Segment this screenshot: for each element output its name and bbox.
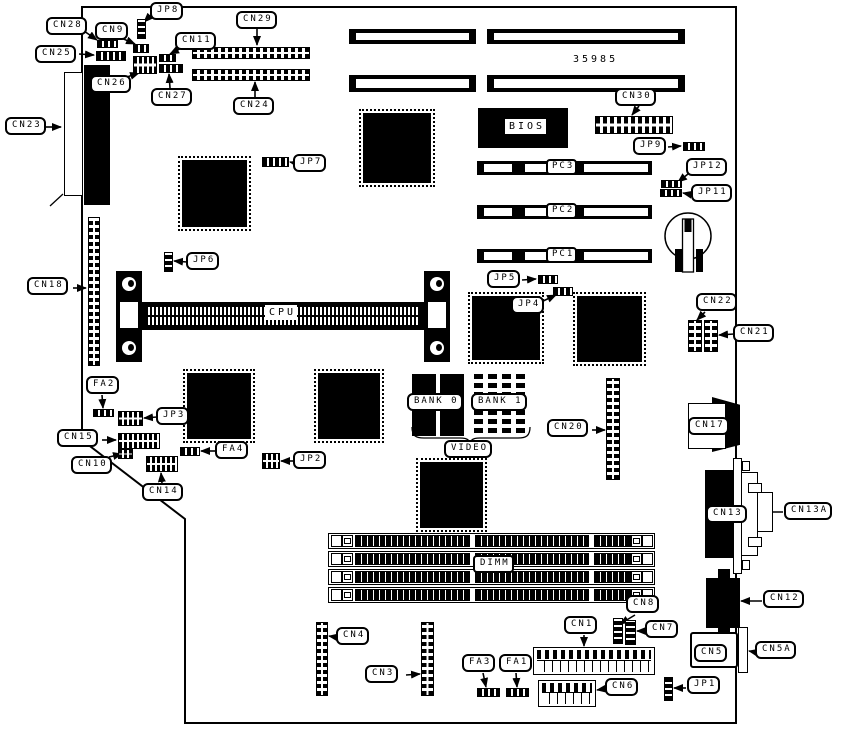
label-cn29: CN29 xyxy=(236,11,277,29)
isa-slot-4 xyxy=(487,75,685,92)
label-dimm: DIMM xyxy=(473,555,514,573)
label-cn21: CN21 xyxy=(733,324,774,342)
label-cn8: CN8 xyxy=(626,595,659,613)
connector-jp11 xyxy=(660,189,682,197)
label-fa2: FA2 xyxy=(86,376,119,394)
connector-jp7 xyxy=(262,157,289,167)
motherboard-diagram: 35985 JP8 CN28 CN9 CN29 CN25 CN11 CN26 C… xyxy=(0,0,841,729)
label-cn4: CN4 xyxy=(336,627,369,645)
connector-jp1 xyxy=(664,677,673,701)
connector-cn28 xyxy=(97,40,118,48)
label-cn18: CN18 xyxy=(27,277,68,295)
screw-hole xyxy=(430,341,444,355)
label-jp2: JP2 xyxy=(293,451,326,469)
cpu-slot-key-left xyxy=(118,300,138,330)
connector-cn3 xyxy=(421,622,434,696)
qfp-chip-7 xyxy=(420,462,483,528)
connector-fa3 xyxy=(477,688,500,697)
label-pc2: PC2 xyxy=(546,203,577,219)
label-cn5: CN5 xyxy=(694,644,727,662)
connector-cn6 xyxy=(538,680,596,707)
label-cn17: CN17 xyxy=(688,417,729,435)
connector-fa2 xyxy=(93,409,114,417)
label-bank1: BANK 1 xyxy=(471,393,527,411)
label-pc3: PC3 xyxy=(546,159,577,175)
label-cn27: CN27 xyxy=(151,88,192,106)
label-bank0: BANK 0 xyxy=(407,393,463,411)
label-jp4: JP4 xyxy=(511,296,544,314)
connector-cn7 xyxy=(625,620,636,645)
connector-cn8 xyxy=(613,618,623,644)
connector-cn13a-dsub xyxy=(757,492,773,532)
connector-jp9 xyxy=(683,142,705,151)
dimm-slot-1 xyxy=(328,533,655,549)
label-fa1: FA1 xyxy=(499,654,532,672)
label-cn15: CN15 xyxy=(57,429,98,447)
label-cn6: CN6 xyxy=(605,678,638,696)
label-bios: BIOS xyxy=(505,119,546,134)
label-fa3: FA3 xyxy=(462,654,495,672)
label-jp1: JP1 xyxy=(687,676,720,694)
label-cn13: CN13 xyxy=(706,505,747,523)
connector-cn20 xyxy=(606,378,620,480)
label-cn5a: CN5A xyxy=(755,641,796,659)
connector-cn25 xyxy=(96,51,126,61)
connector-cn27 xyxy=(159,64,183,73)
label-cn25: CN25 xyxy=(35,45,76,63)
label-jp5: JP5 xyxy=(487,270,520,288)
label-fa4: FA4 xyxy=(215,441,248,459)
connector-jp8 xyxy=(137,19,146,39)
label-cn12: CN12 xyxy=(763,590,804,608)
isa-slot-1 xyxy=(349,29,476,44)
label-cn28: CN28 xyxy=(46,17,87,35)
connector-cn14 xyxy=(146,456,178,472)
isa-slot-3 xyxy=(349,75,476,92)
isa-slot-2 xyxy=(487,29,685,44)
connector-jp4 xyxy=(553,287,573,296)
qfp-chip-2 xyxy=(182,160,247,227)
connector-cn15 xyxy=(118,433,160,449)
connector-cn26 xyxy=(133,56,157,74)
connector-cn9 xyxy=(133,44,149,53)
connector-fa4 xyxy=(180,447,200,456)
connector-cn30 xyxy=(595,116,673,134)
label-jp12: JP12 xyxy=(686,158,727,176)
label-cn24: CN24 xyxy=(233,97,274,115)
label-cn14: CN14 xyxy=(142,483,183,501)
label-cn23: CN23 xyxy=(5,117,46,135)
dimm-slot-4 xyxy=(328,587,655,603)
label-cn22: CN22 xyxy=(696,293,737,311)
connector-cn12-stub-top xyxy=(718,569,730,578)
board-corner-tick xyxy=(50,194,63,206)
connector-cn1 xyxy=(533,647,655,675)
screw-hole xyxy=(122,341,136,355)
connector-jp6 xyxy=(164,252,173,272)
label-cn1: CN1 xyxy=(564,616,597,634)
label-video: VIDEO xyxy=(444,440,492,458)
screw-hole xyxy=(430,277,444,291)
qfp-chip-5 xyxy=(187,373,251,439)
qfp-chip-6 xyxy=(318,373,380,439)
connector-jp12 xyxy=(661,180,682,188)
label-jp8: JP8 xyxy=(150,2,183,20)
label-cn30: CN30 xyxy=(615,88,656,106)
label-cn9: CN9 xyxy=(95,22,128,40)
label-cn26: CN26 xyxy=(90,75,131,93)
label-cn7: CN7 xyxy=(645,620,678,638)
screw-hole xyxy=(122,277,136,291)
label-jp7: JP7 xyxy=(293,154,326,172)
connector-jp3 xyxy=(118,411,143,426)
label-jp9: JP9 xyxy=(633,137,666,155)
connector-cn13-screw-bottom xyxy=(748,537,762,547)
connector-cn24 xyxy=(192,69,310,81)
connector-cn22 xyxy=(688,320,702,352)
connector-cn11 xyxy=(159,54,176,62)
qfp-chip-4 xyxy=(577,296,642,362)
connector-cn12 xyxy=(706,578,740,628)
label-jp11: JP11 xyxy=(691,184,732,202)
connector-jp5 xyxy=(538,275,558,284)
connector-fa1 xyxy=(506,688,529,697)
connector-cn21 xyxy=(704,320,718,352)
label-cn10: CN10 xyxy=(71,456,112,474)
connector-cn23-outer xyxy=(64,72,83,196)
label-jp6: JP6 xyxy=(186,252,219,270)
cpu-slot-key-right xyxy=(428,300,448,330)
connector-cn13-tab-top xyxy=(742,461,750,471)
part-number: 35985 xyxy=(573,54,618,65)
label-cn11: CN11 xyxy=(175,32,216,50)
connector-cn13-tab-bottom xyxy=(742,560,750,570)
connector-cn5a-bar xyxy=(738,627,748,673)
label-pc1: PC1 xyxy=(546,247,577,263)
label-cpu: CPU xyxy=(265,305,297,320)
qfp-chip-1 xyxy=(363,113,431,183)
label-cn20: CN20 xyxy=(547,419,588,437)
label-jp3: JP3 xyxy=(156,407,189,425)
connector-jp2 xyxy=(262,453,280,469)
connector-cn18 xyxy=(88,217,100,366)
connector-cn4 xyxy=(316,622,328,696)
label-cn3: CN3 xyxy=(365,665,398,683)
label-cn13a: CN13A xyxy=(784,502,832,520)
connector-cn10 xyxy=(118,449,133,459)
